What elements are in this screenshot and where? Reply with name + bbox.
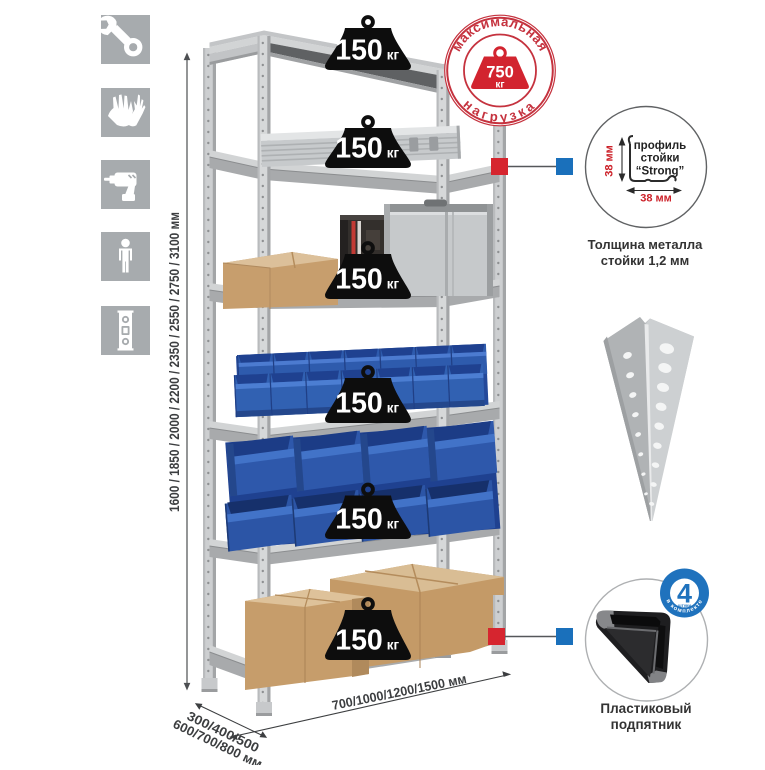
- svg-text:Толщина металла: Толщина металла: [588, 237, 703, 252]
- svg-text:“Strong”: “Strong”: [636, 166, 685, 178]
- svg-text:подпятник: подпятник: [611, 717, 682, 732]
- svg-text:1600 / 1850 / 2000 / 2200 / 23: 1600 / 1850 / 2000 / 2200 / 2350 / 2550 …: [167, 212, 182, 512]
- svg-text:150: 150: [335, 133, 383, 165]
- svg-text:150: 150: [335, 264, 383, 296]
- svg-text:кг: кг: [387, 146, 400, 161]
- svg-text:кг: кг: [495, 80, 504, 91]
- svg-text:стойки: стойки: [641, 153, 680, 165]
- svg-text:профиль: профиль: [634, 140, 687, 152]
- svg-text:кг: кг: [387, 401, 400, 416]
- svg-text:150: 150: [335, 388, 383, 420]
- svg-text:150: 150: [335, 504, 383, 536]
- svg-text:кг: кг: [387, 48, 400, 63]
- svg-text:Пластиковый: Пластиковый: [600, 701, 691, 716]
- svg-text:150: 150: [335, 35, 383, 67]
- svg-text:38 мм: 38 мм: [640, 193, 672, 205]
- svg-text:150: 150: [335, 625, 383, 657]
- svg-text:кг: кг: [387, 517, 400, 532]
- svg-text:кг: кг: [387, 638, 400, 653]
- svg-text:38 мм: 38 мм: [604, 145, 616, 177]
- svg-text:стойки 1,2 мм: стойки 1,2 мм: [601, 253, 689, 268]
- svg-text:кг: кг: [387, 277, 400, 292]
- svg-text:штуки: штуки: [678, 603, 691, 608]
